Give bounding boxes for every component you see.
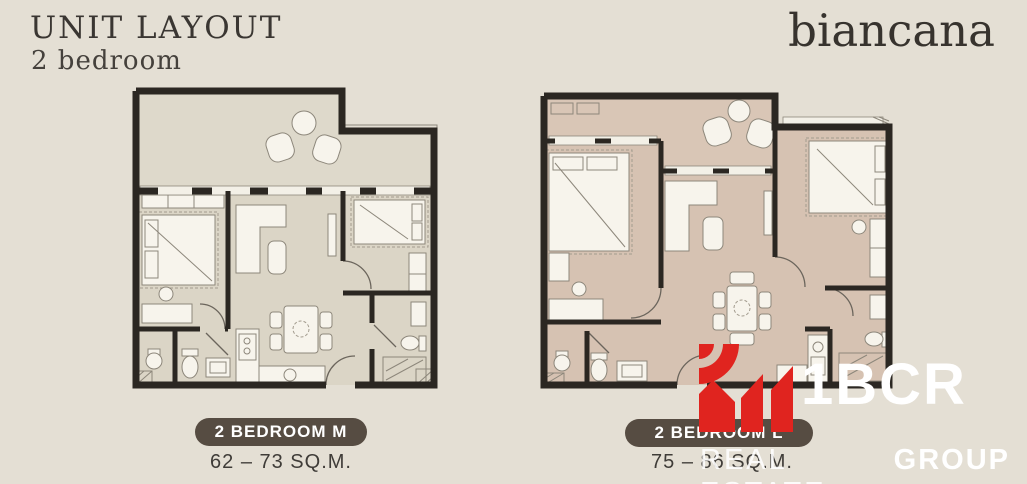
1bcr-tagline: REAL ESTATE GROUP — [700, 444, 1010, 484]
brand-logo: biancana — [788, 4, 995, 57]
floorplan-2-bedroom-m — [128, 83, 440, 389]
page-subtitle: 2 bedroom — [31, 46, 182, 76]
unit-layout-sheet: UNIT LAYOUT 2 bedroom biancana — [0, 0, 1027, 484]
unit-area-2-bedroom-m: 62 – 73 SQ.M. — [195, 451, 367, 474]
tagline-real-estate: REAL ESTATE — [700, 444, 872, 484]
unit-badge-2-bedroom-m: 2 BEDROOM M — [195, 418, 367, 446]
page-title: UNIT LAYOUT — [30, 10, 282, 46]
1bcr-logo-text: 1BCR — [801, 356, 967, 414]
1bcr-logo-icon — [699, 344, 793, 432]
unit-badge-label: 2 BEDROOM M — [215, 422, 348, 442]
tagline-group: GROUP — [894, 444, 1010, 484]
